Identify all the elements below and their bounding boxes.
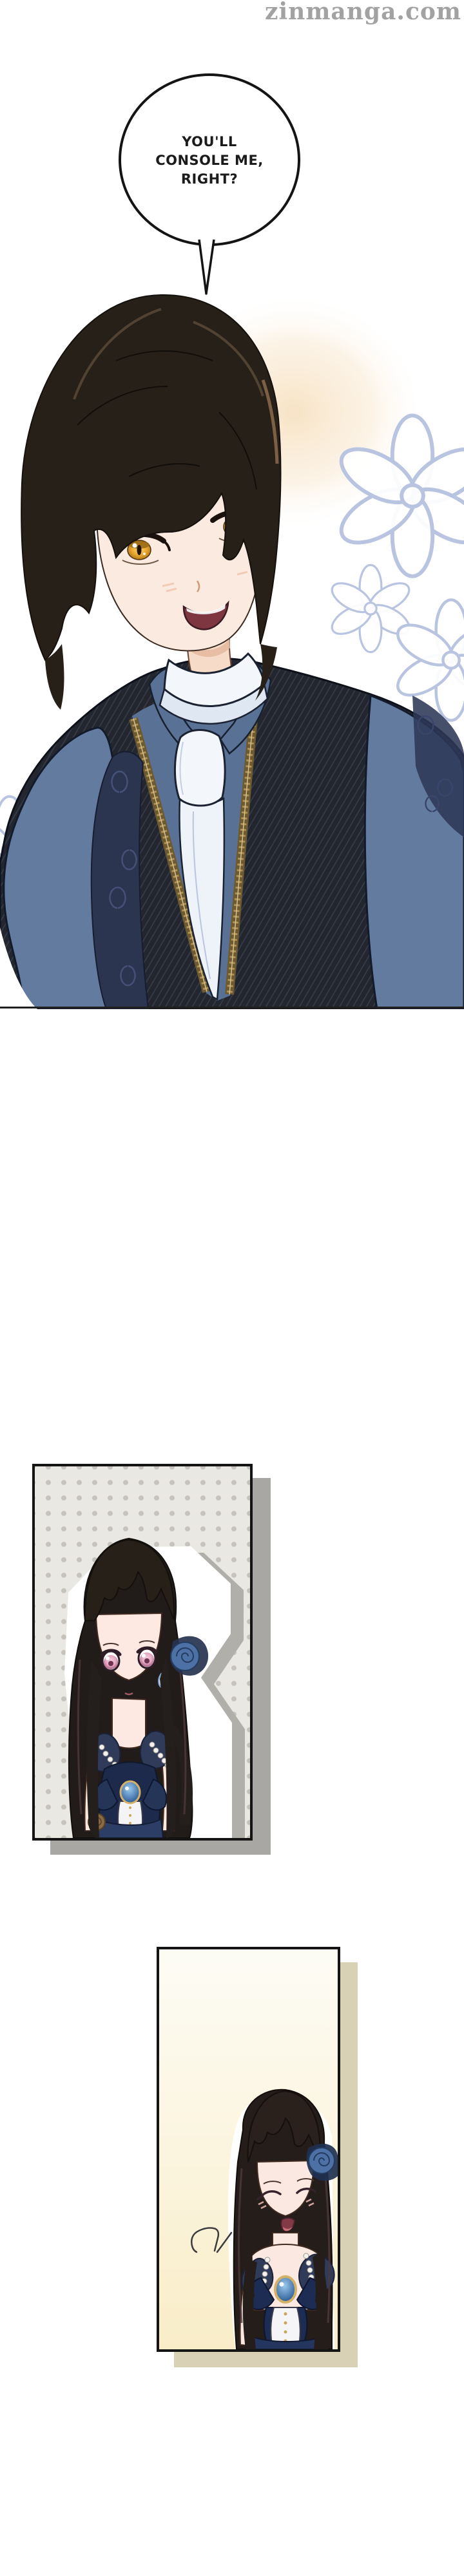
gem-sparkle (280, 2282, 284, 2287)
doodle-mark (191, 2228, 231, 2252)
neck-chest (112, 1698, 146, 1748)
boy-illustration (0, 283, 464, 1009)
speech-line: CONSOLE ME, (119, 151, 300, 170)
speech-bubble-text: YOU'LL CONSOLE ME, RIGHT? (119, 133, 300, 189)
left-lace-band (92, 752, 148, 1009)
flower-lineart-right (327, 415, 464, 720)
blue-rose-ornament (170, 1636, 208, 1676)
boy-hair (21, 295, 280, 710)
webtoon-reader-page: zinmanga.com YOU'LL CONSOLE ME, RIGHT? (0, 0, 464, 2576)
chibi-girl-illustration (35, 1466, 250, 1838)
gem-sparkle (125, 1786, 129, 1790)
gem-brooch (275, 2277, 296, 2302)
girl-closed-eyes-panel (157, 1947, 340, 2352)
speech-bubble-tail (199, 240, 214, 294)
site-watermark: zinmanga.com (265, 0, 461, 26)
speech-line: RIGHT? (119, 170, 300, 189)
speech-line: YOU'LL (119, 133, 300, 151)
girl-closed-eyes-illustration (159, 1949, 338, 2349)
gem-brooch (121, 1781, 140, 1803)
girl-closed-eyes (234, 2090, 338, 2349)
chibi-girl-dotted-panel (32, 1464, 253, 1841)
panel-divider-line (0, 1007, 464, 1009)
